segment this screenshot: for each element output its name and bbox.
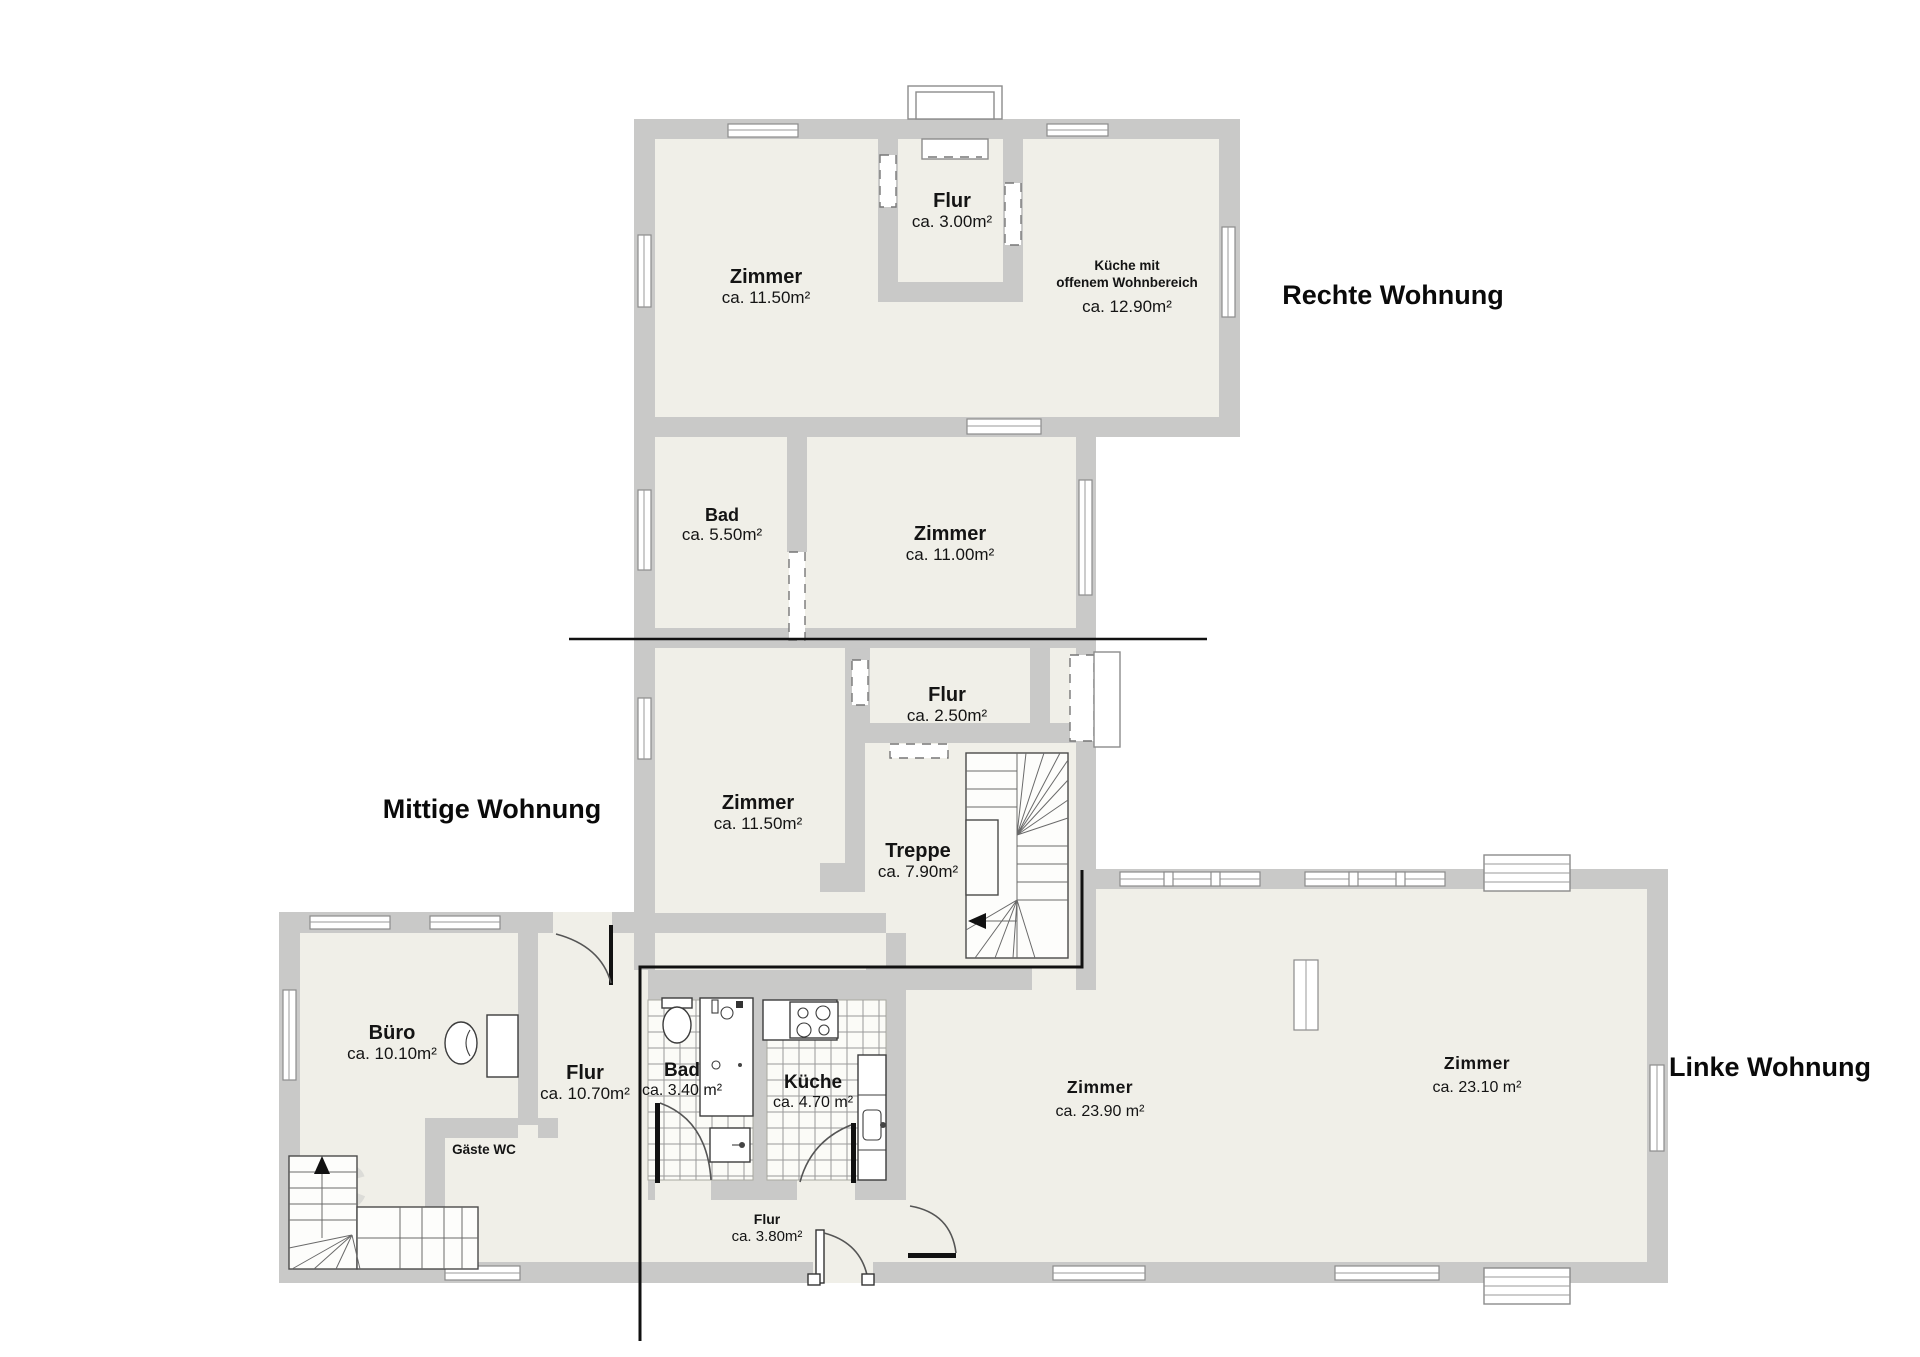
room-label-zimmer-top: Zimmer ca. 11.50m² — [722, 266, 811, 309]
wall — [886, 933, 906, 1200]
room-area: ca. 3.80m² — [732, 1228, 803, 1246]
floor-plan-canvas: C I — [0, 0, 1920, 1357]
room-label-zimmer-2310: Zimmer ca. 23.10 m² — [1433, 1054, 1522, 1097]
toilet — [663, 1007, 691, 1043]
room-name: Büro — [347, 1022, 437, 1044]
room-area: ca. 10.70m² — [540, 1084, 630, 1104]
entry-porch-top-inner — [916, 92, 994, 119]
room-label-zimmer-mid: Zimmer ca. 11.50m² — [714, 792, 803, 835]
door-opening — [518, 1125, 538, 1180]
room-label-flur-wing: Flur ca. 10.70m² — [540, 1062, 630, 1105]
room-name: Gäste WC — [452, 1142, 516, 1157]
room-area: ca. 5.50m² — [682, 525, 762, 545]
room-name: Zimmer — [1056, 1078, 1145, 1098]
window-mullion — [1211, 872, 1220, 886]
door-dashed — [789, 552, 805, 640]
room-name: Küche — [773, 1072, 853, 1093]
room-area: ca. 23.10 m² — [1433, 1078, 1522, 1097]
exterior-platform — [1094, 652, 1120, 747]
room-name: Treppe — [878, 840, 958, 862]
exterior-door-dashed — [1070, 655, 1094, 741]
room-name: Bad — [642, 1060, 722, 1081]
door-leaf — [609, 925, 613, 985]
wall — [634, 119, 1240, 139]
door-dashed — [890, 744, 948, 758]
room-name: Flur — [732, 1212, 803, 1228]
chair — [445, 1022, 477, 1064]
door-hinge — [862, 1274, 874, 1285]
wall — [648, 970, 906, 1000]
wall — [1030, 648, 1050, 743]
fitting-dot — [738, 1063, 742, 1067]
window-mullion — [1396, 872, 1405, 886]
window-mullion — [1349, 872, 1358, 886]
door-leaf — [655, 1103, 660, 1183]
room-label-flur-top: Flur ca. 3.00m² — [912, 190, 992, 233]
room-area: ca. 3.00m² — [912, 212, 992, 232]
kitchen-counter-right — [858, 1055, 886, 1180]
door-opening — [797, 1180, 855, 1200]
room-name: Zimmer — [714, 792, 803, 814]
apartment-label-mittige: Mittige Wohnung — [383, 794, 601, 825]
room-area: ca. 7.90m² — [878, 862, 958, 882]
room-area: ca. 11.50m² — [714, 814, 803, 834]
room-area: ca. 3.40 m² — [642, 1081, 722, 1100]
wall — [655, 417, 1219, 437]
room-name: offenem Wohnbereich — [1056, 275, 1198, 292]
room-area: ca. 4.70 m² — [773, 1093, 853, 1112]
room-label-buero: Büro ca. 10.10m² — [347, 1022, 437, 1065]
door-hinge — [808, 1274, 820, 1285]
room-area: ca. 12.90m² — [1056, 297, 1198, 317]
room-area: ca. 23.90 m² — [1056, 1102, 1145, 1121]
room-label-treppe: Treppe ca. 7.90m² — [878, 840, 958, 883]
room-label-kueche-left: Küche ca. 4.70 m² — [773, 1072, 853, 1112]
room-area: ca. 11.50m² — [722, 288, 811, 308]
room-name: Zimmer — [722, 266, 811, 288]
wall — [634, 913, 886, 933]
door-leaf — [908, 1253, 956, 1258]
room-label-flur-mid: Flur ca. 2.50m² — [907, 684, 987, 727]
room-area: ca. 11.00m² — [906, 545, 995, 565]
wall — [820, 863, 865, 892]
door-leaf — [851, 1123, 856, 1183]
entry-recess — [922, 139, 988, 159]
room-name: Küche mit — [1056, 258, 1198, 275]
stair-landing — [966, 820, 998, 895]
room-name: Flur — [912, 190, 992, 212]
wall — [878, 282, 1023, 302]
room-label-kueche-open: Küche mit offenem Wohnbereich ca. 12.90m… — [1056, 258, 1198, 317]
room-label-zimmer-11: Zimmer ca. 11.00m² — [906, 523, 995, 566]
shower-fitting — [736, 1001, 743, 1008]
room-name: Zimmer — [906, 523, 995, 545]
apartment-label-linke: Linke Wohnung — [1669, 1052, 1871, 1083]
room-label-bad-left: Bad ca. 3.40 m² — [642, 1060, 722, 1100]
door-dashed — [880, 155, 896, 207]
door-dashed — [1005, 183, 1021, 245]
room-name: Bad — [682, 505, 762, 525]
room-area: ca. 10.10m² — [347, 1044, 437, 1064]
room-label-zimmer-2390: Zimmer ca. 23.90 m² — [1056, 1078, 1145, 1121]
room-name: Flur — [907, 684, 987, 706]
room-name: Zimmer — [1433, 1054, 1522, 1074]
staircase-treppe — [966, 753, 1068, 958]
room-label-bad-top: Bad ca. 5.50m² — [682, 505, 762, 546]
wall — [518, 933, 538, 1125]
room-area: ca. 2.50m² — [907, 706, 987, 726]
wall — [787, 437, 807, 552]
door-opening — [655, 1180, 711, 1200]
apartment-label-rechte: Rechte Wohnung — [1282, 280, 1503, 311]
room-label-flur-entry: Flur ca. 3.80m² — [732, 1212, 803, 1246]
faucet — [880, 1122, 886, 1128]
room-name: Flur — [540, 1062, 630, 1084]
door-opening — [886, 1200, 906, 1262]
window-mullion — [1164, 872, 1173, 886]
room-label-gaeste-wc: Gäste WC — [452, 1142, 516, 1157]
door-dashed — [852, 660, 868, 705]
door-opening — [553, 912, 612, 933]
desk — [487, 1015, 518, 1077]
